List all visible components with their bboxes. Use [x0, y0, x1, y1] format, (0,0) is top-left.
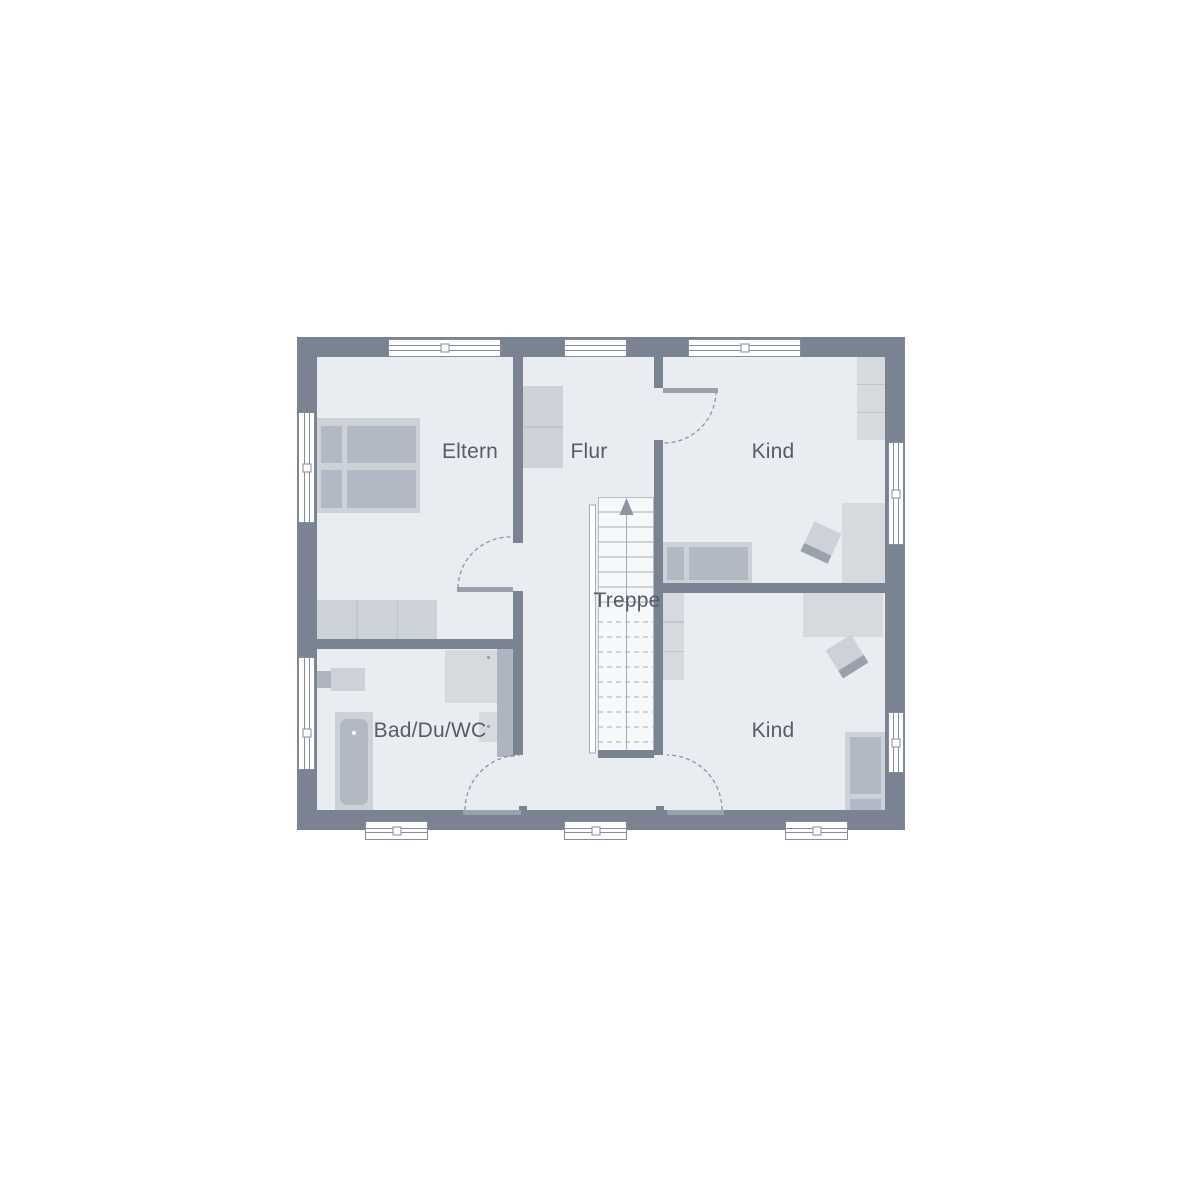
door-arc-eltern	[458, 537, 511, 588]
room-label-kind-bottom: Kind	[752, 719, 795, 743]
door-arc-kind-top	[663, 391, 716, 443]
door-arc-bad	[465, 755, 520, 810]
room-label-flur: Flur	[571, 440, 608, 464]
room-label-eltern: Eltern	[442, 440, 498, 464]
door-arc-kind-bottom	[667, 755, 722, 810]
room-label-treppe: Treppe	[594, 589, 661, 613]
room-label-bad: Bad/Du/WC	[374, 719, 487, 743]
floor-plan: Eltern Flur Kind Treppe Bad/Du/WC Kind	[0, 0, 1200, 1200]
room-label-kind-top: Kind	[752, 440, 795, 464]
